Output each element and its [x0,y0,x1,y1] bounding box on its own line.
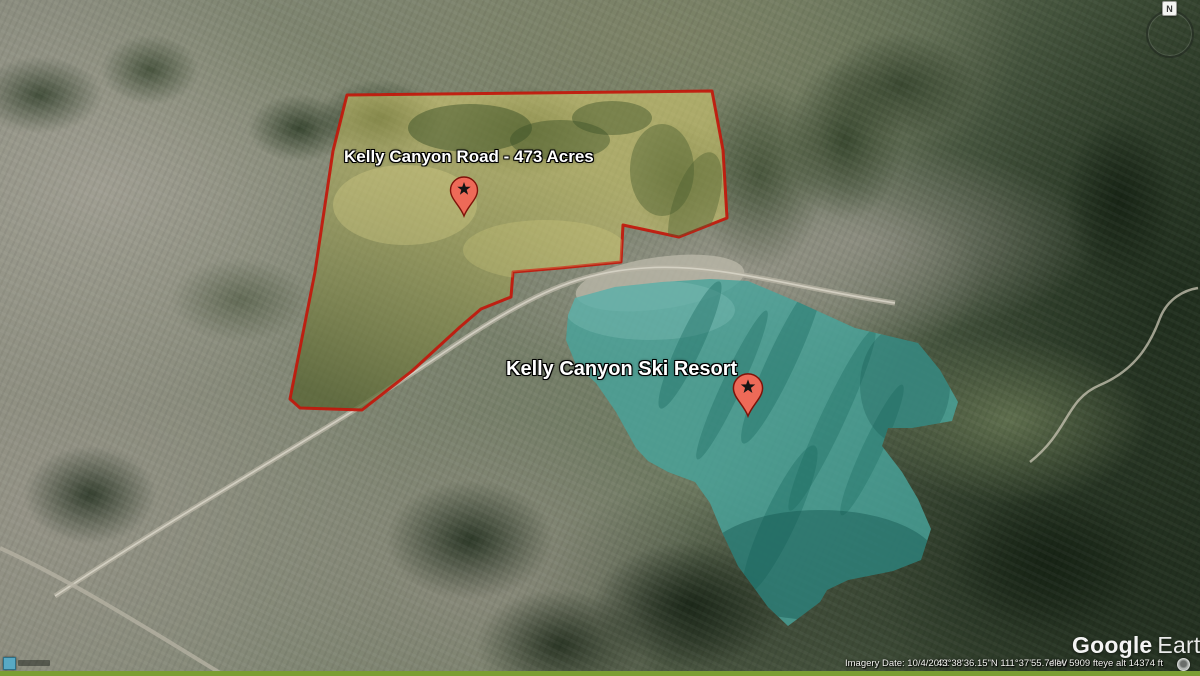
globe-status-icon [1177,658,1190,671]
map-overlay-graphics [0,0,1200,676]
parcel-ski-resort-polygon[interactable] [565,271,958,626]
elevation-text: elev 5909 ft [1049,658,1098,669]
compass-ring[interactable] [1146,10,1194,58]
parcel2-label: Kelly Canyon Ski Resort [506,358,737,381]
bottom-green-strip [0,671,1200,676]
google-earth-watermark: GoogleEarth [1072,632,1200,659]
imagery-date-text: Imagery Date: 10/4/2021 [845,658,950,669]
cursor-coordinates-text: 43°38'36.15"N 111°37'55.74"W [937,658,1067,669]
watermark-product: Earth [1157,632,1200,658]
compass-north-marker[interactable]: N [1162,1,1177,16]
bottom-left-road [0,548,225,676]
parcel1-label: Kelly Canyon Road - 473 Acres [344,147,594,167]
forest-trail [1030,288,1198,462]
watermark-brand: Google [1072,632,1152,658]
eye-altitude-text: eye alt 14374 ft [1098,658,1163,669]
map-attribution-smudge [18,660,50,666]
compass-north-label: N [1166,4,1173,14]
google-earth-map-viewport[interactable]: Kelly Canyon Road - 473 Acres Kelly Cany… [0,0,1200,676]
map-attribution-icon [3,657,16,670]
